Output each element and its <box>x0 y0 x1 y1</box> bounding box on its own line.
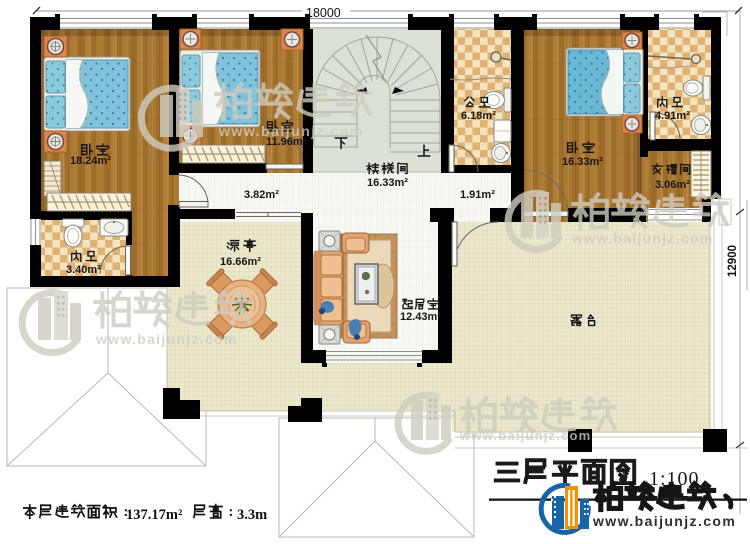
svg-text:3.3m: 3.3m <box>237 507 267 523</box>
svg-text:3.82m²: 3.82m² <box>244 189 279 201</box>
svg-text:12.43m²: 12.43m² <box>400 311 441 323</box>
svg-text:137.17m²: 137.17m² <box>126 507 182 523</box>
svg-text:3.40m²: 3.40m² <box>66 264 101 276</box>
svg-text:4.91m²: 4.91m² <box>655 110 690 122</box>
svg-text:6.18m²: 6.18m² <box>461 110 496 122</box>
svg-text:16.33m²: 16.33m² <box>562 156 603 168</box>
svg-text:3.06m²: 3.06m² <box>655 179 690 191</box>
svg-text:www.baijunjz.com: www.baijunjz.com <box>218 123 364 139</box>
svg-text:16.66m²: 16.66m² <box>220 256 261 268</box>
svg-text:18.24m²: 18.24m² <box>70 155 111 167</box>
svg-text:www.baijunjz.com: www.baijunjz.com <box>459 428 591 443</box>
svg-text:www.baijunjz.com: www.baijunjz.com <box>592 513 736 529</box>
svg-text:12900: 12900 <box>727 245 739 277</box>
svg-text:16.33m²: 16.33m² <box>367 177 408 189</box>
svg-text:www.baijunjz.com: www.baijunjz.com <box>571 230 714 246</box>
svg-text:1.91m²: 1.91m² <box>460 189 495 201</box>
svg-text:www.baijunjz.com: www.baijunjz.com <box>95 331 238 347</box>
svg-text:18000: 18000 <box>306 6 341 20</box>
